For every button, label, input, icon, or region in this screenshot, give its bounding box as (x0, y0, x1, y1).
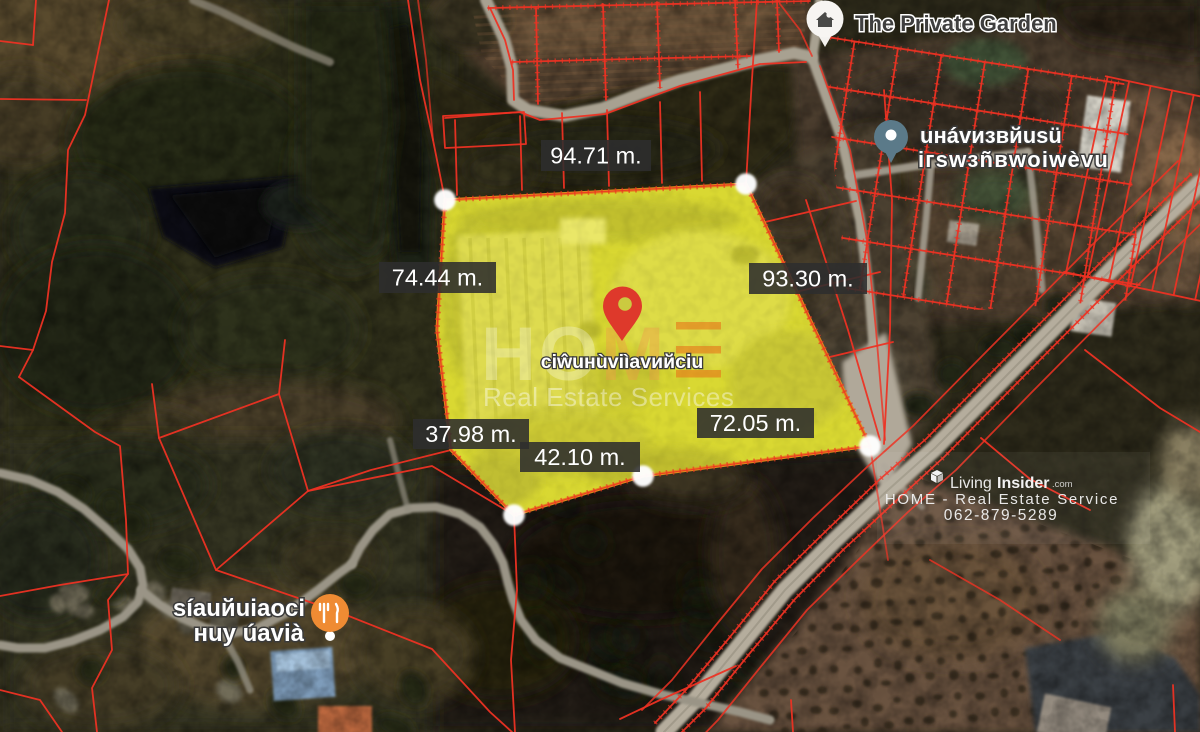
svg-text:74.44 m.: 74.44 m. (392, 265, 483, 291)
svg-text:uнávизвйusü: uнávизвйusü (920, 123, 1062, 148)
svg-text:Real Estate Services: Real Estate Services (483, 382, 734, 412)
svg-text:нuу úаvià: нuу úаvià (193, 620, 304, 647)
svg-text:37.98 m.: 37.98 m. (425, 421, 516, 447)
svg-text:062-879-5289: 062-879-5289 (944, 507, 1059, 524)
svg-text:42.10 m.: 42.10 m. (534, 444, 625, 470)
svg-text:iгswзñвwоiwèvu: iгswзñвwоiwèvu (918, 147, 1109, 172)
svg-text:Living: Living (950, 475, 992, 492)
svg-text:The Private Garden: The Private Garden (855, 11, 1057, 36)
svg-text:síаuйuiаоci: síаuйuiаоci (173, 595, 305, 622)
svg-text:93.30 m.: 93.30 m. (762, 266, 853, 292)
svg-text:72.05 m.: 72.05 m. (710, 410, 801, 436)
svg-text:94.71 m.: 94.71 m. (550, 143, 641, 169)
svg-text:Insider: Insider (997, 475, 1049, 492)
svg-text:ciŵuнùviìаvийciu: ciŵuнùviìаvийciu (541, 351, 704, 373)
svg-text:HOME - Real Estate Service: HOME - Real Estate Service (885, 491, 1119, 508)
svg-text:.com: .com (1052, 479, 1073, 490)
